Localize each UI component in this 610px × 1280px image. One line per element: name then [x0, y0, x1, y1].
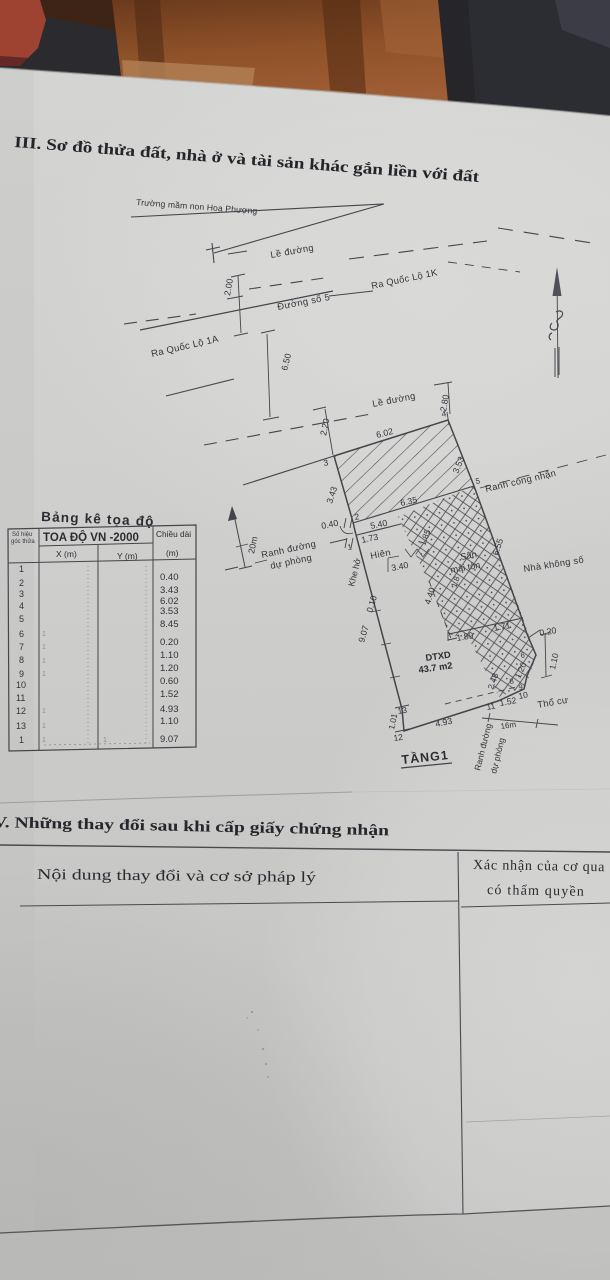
svg-text:1: 1: [42, 723, 46, 730]
svg-text:Chiều dài: Chiều dài: [156, 529, 191, 539]
svg-text:9.07: 9.07: [160, 734, 179, 745]
svg-text:1: 1: [42, 708, 46, 715]
svg-text:X (m): X (m): [56, 549, 77, 559]
svg-text:1.10: 1.10: [160, 716, 179, 727]
svg-text:Nội dung thay đổi và cơ sở phá: Nội dung thay đổi và cơ sở pháp lý: [37, 867, 317, 886]
svg-text:8: 8: [19, 655, 24, 665]
svg-text:Số hiệu: Số hiệu: [12, 532, 32, 538]
svg-text:3.53: 3.53: [160, 606, 179, 617]
svg-text:1.52: 1.52: [160, 689, 179, 700]
svg-text:1: 1: [103, 737, 107, 744]
svg-text:4: 4: [19, 601, 24, 611]
svg-text:1: 1: [42, 631, 46, 638]
svg-text:1.10: 1.10: [160, 650, 179, 661]
svg-text:9: 9: [19, 669, 24, 679]
svg-text:góc thửa: góc thửa: [11, 538, 35, 545]
svg-text:10: 10: [16, 680, 26, 690]
svg-text:1.20: 1.20: [160, 663, 179, 674]
svg-text:7: 7: [19, 642, 24, 652]
svg-text:0.40: 0.40: [160, 572, 179, 583]
svg-text:10: 10: [518, 689, 529, 701]
svg-text:1: 1: [19, 735, 24, 745]
svg-text:1: 1: [42, 644, 46, 651]
svg-text:0.60: 0.60: [160, 676, 179, 687]
svg-text:TOA ĐỘ VN -2000: TOA ĐỘ VN -2000: [43, 531, 139, 544]
svg-text:3: 3: [19, 589, 24, 599]
svg-text:13: 13: [16, 721, 26, 731]
svg-text:1: 1: [42, 658, 46, 665]
svg-text:6: 6: [19, 629, 24, 639]
svg-text:3.43: 3.43: [160, 585, 179, 596]
svg-text:8.45: 8.45: [160, 619, 179, 630]
svg-text:có thẩm quyền: có thẩm quyền: [487, 883, 585, 900]
svg-text:2: 2: [19, 578, 24, 588]
svg-text:5: 5: [19, 614, 24, 624]
svg-text:Y (m): Y (m): [117, 551, 138, 561]
svg-text:11: 11: [16, 693, 25, 703]
svg-text:1: 1: [42, 737, 46, 744]
svg-text:4.93: 4.93: [160, 704, 179, 715]
svg-text:Xác nhận của cơ qua: Xác nhận của cơ qua: [473, 858, 605, 875]
svg-text:0.20: 0.20: [160, 637, 179, 648]
svg-text:1: 1: [19, 564, 24, 574]
svg-text:12: 12: [16, 706, 26, 716]
svg-text:1: 1: [42, 671, 46, 678]
svg-text:(m): (m): [166, 548, 179, 558]
svg-text:12: 12: [393, 732, 404, 743]
